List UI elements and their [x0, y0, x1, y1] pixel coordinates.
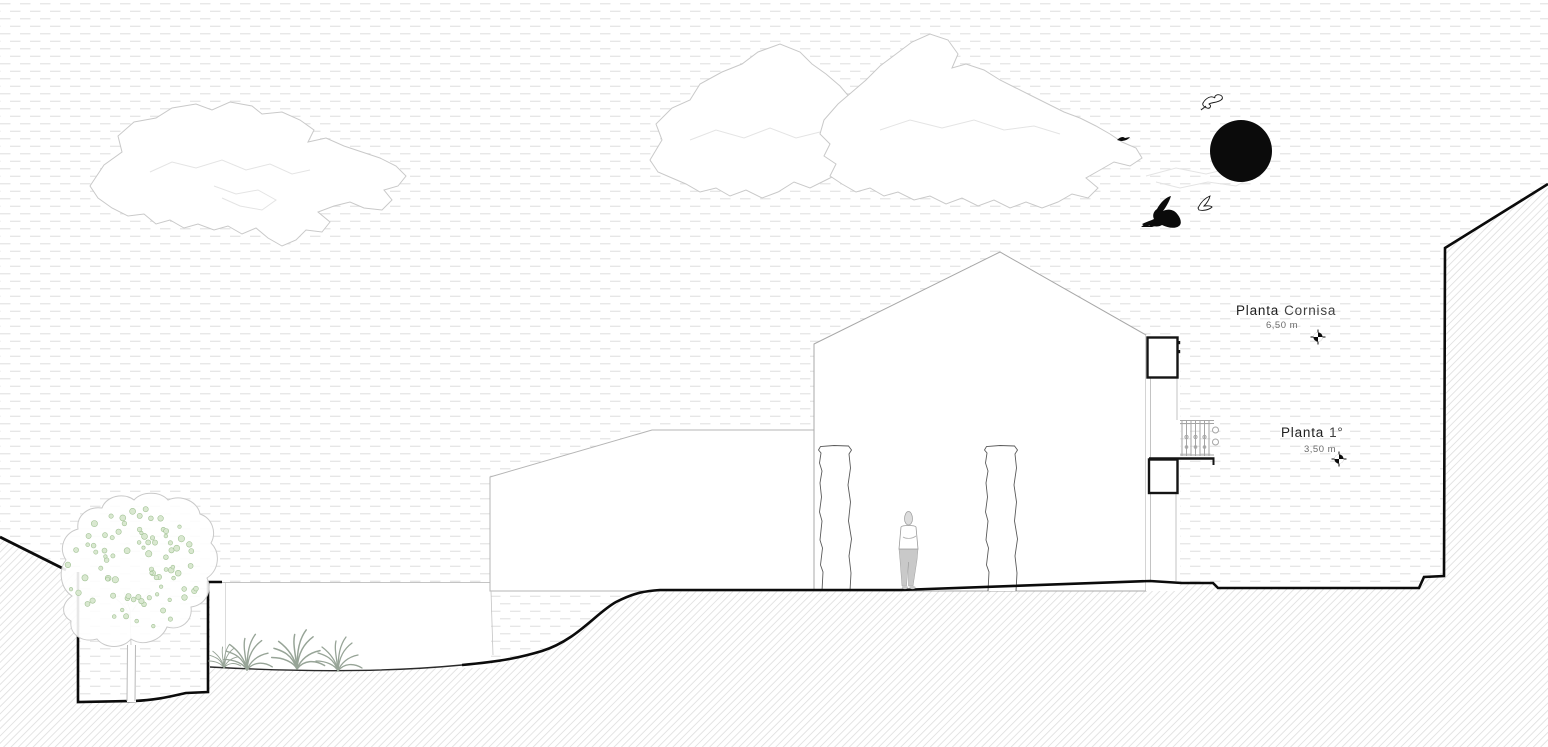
cornice-section-box	[1148, 338, 1181, 378]
level-label-cornice-qualifier: Cornisa	[1284, 303, 1336, 318]
level-label-first-floor-qualifier: 1°	[1329, 425, 1344, 440]
pillar-left	[819, 446, 852, 592]
level-label-cornice-name: Planta	[1236, 303, 1279, 318]
section-drawing-canvas: PlantaCornisa 6,50 m Planta1° 3,50 m	[0, 0, 1548, 747]
level-label-first-floor: Planta1°	[1281, 425, 1344, 440]
level-elevation-first-floor: 3,50 m	[1304, 444, 1336, 455]
garden-wall	[210, 582, 491, 668]
level-elevation-cornice: 6,50 m	[1266, 320, 1298, 331]
level-label-first-floor-name: Planta	[1281, 425, 1324, 440]
sun-icon	[1210, 120, 1272, 182]
level-label-cornice: PlantaCornisa	[1236, 303, 1336, 318]
section-drawing	[0, 0, 1548, 747]
pillar-right	[985, 446, 1018, 592]
